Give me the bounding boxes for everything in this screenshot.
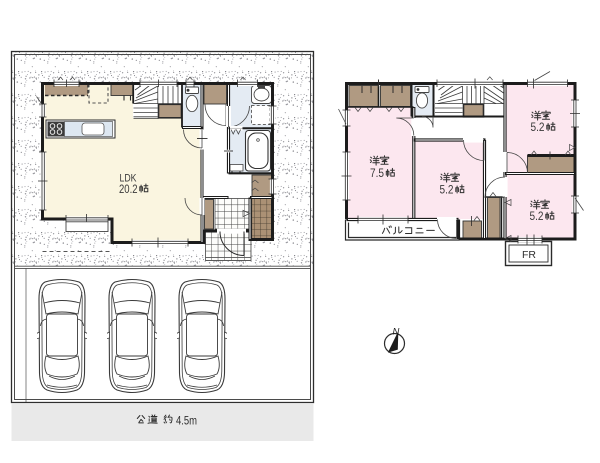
svg-text:5.2: 5.2 (440, 183, 454, 197)
svg-text:5.2: 5.2 (531, 120, 545, 134)
svg-text:N: N (393, 327, 400, 338)
svg-text:FR: FR (522, 249, 536, 261)
svg-text:5.2: 5.2 (530, 209, 544, 223)
svg-text:4.5m: 4.5m (176, 414, 197, 428)
svg-text:20.2: 20.2 (119, 182, 138, 196)
svg-text:7.5: 7.5 (370, 166, 384, 180)
